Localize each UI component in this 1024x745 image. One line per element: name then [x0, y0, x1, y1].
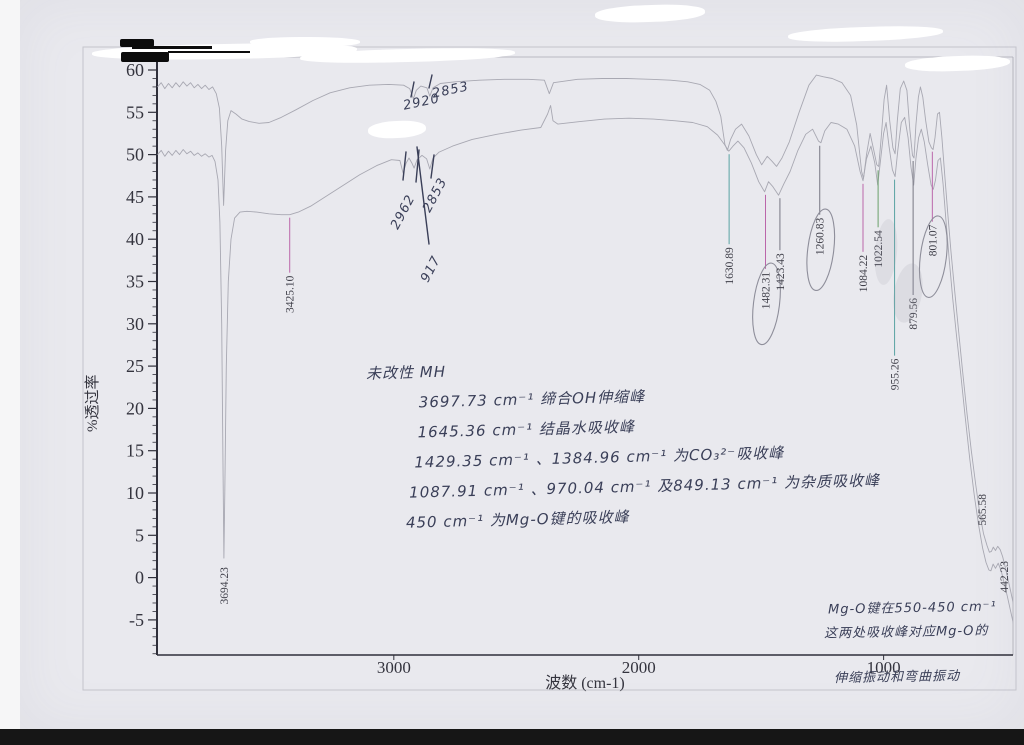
ink-mark — [132, 46, 212, 49]
corner-note: 伸缩振动和弯曲振动 — [834, 665, 960, 686]
y-tick-label: 25 — [126, 356, 144, 376]
corner-note: Mg-O键在550-450 cm⁻¹ — [828, 596, 997, 618]
y-tick-label: 60 — [126, 60, 144, 80]
peak-label: 3425.10 — [285, 275, 297, 313]
y-tick-label: 30 — [126, 314, 144, 334]
corner-note: 这两处吸收峰对应Mg-O的 — [824, 620, 989, 642]
x-tick-label: 2000 — [622, 658, 656, 677]
y-tick-label: 10 — [126, 483, 144, 503]
ink-mark — [121, 52, 169, 62]
x-axis-title: 波数 (cm-1) — [545, 674, 625, 692]
scanned-ftir-page: 605550454035302520151050-5300020001000波数… — [0, 0, 1024, 745]
peak-label: 1260.83 — [815, 218, 827, 256]
x-tick-label: 3000 — [377, 658, 411, 677]
handwritten-note-block: 未改性 MH 3697.73 cm⁻¹ 缔合OH伸缩峰 1645.36 cm⁻¹… — [366, 349, 882, 542]
y-axis-title: %透过率 — [84, 375, 101, 433]
pen-stroke — [411, 82, 414, 97]
scan-bottom-edge — [0, 729, 1024, 745]
peak-label: 1084.22 — [858, 255, 870, 293]
note-line: 1429.35 cm⁻¹ 、1384.96 cm⁻¹ 为CO₃²⁻吸收峰 — [414, 439, 879, 472]
peak-label: 1482.31 — [761, 272, 773, 310]
y-tick-label: 55 — [126, 102, 144, 122]
peak-label: 442.23 — [999, 561, 1011, 593]
y-tick-label: -5 — [129, 610, 144, 630]
peak-label: 1423.43 — [775, 253, 787, 291]
y-tick-label: 5 — [135, 525, 144, 545]
peak-label: 955.26 — [890, 358, 902, 390]
y-tick-label: 45 — [126, 187, 144, 207]
note-line: 3697.73 cm⁻¹ 缔合OH伸缩峰 — [418, 379, 877, 412]
y-tick-label: 50 — [126, 145, 144, 165]
note-line: 1645.36 cm⁻¹ 结晶水吸收峰 — [417, 409, 878, 442]
y-tick-label: 35 — [126, 272, 144, 292]
peak-label: 565.58 — [977, 494, 989, 526]
y-tick-label: 0 — [135, 568, 144, 588]
note-line: 450 cm⁻¹ 为Mg-O键的吸收峰 — [406, 499, 881, 532]
y-tick-label: 40 — [126, 229, 144, 249]
y-tick-label: 20 — [126, 398, 144, 418]
y-tick-label: 15 — [126, 441, 144, 461]
peak-label: 3694.23 — [219, 567, 231, 605]
note-line: 1087.91 cm⁻¹ 、970.04 cm⁻¹ 及849.13 cm⁻¹ 为… — [409, 469, 880, 502]
ink-mark — [168, 51, 250, 53]
peak-label: 801.07 — [927, 224, 939, 256]
peak-label: 1630.89 — [724, 247, 736, 285]
pen-smudge — [872, 218, 900, 286]
whiteout-streak — [250, 37, 360, 47]
